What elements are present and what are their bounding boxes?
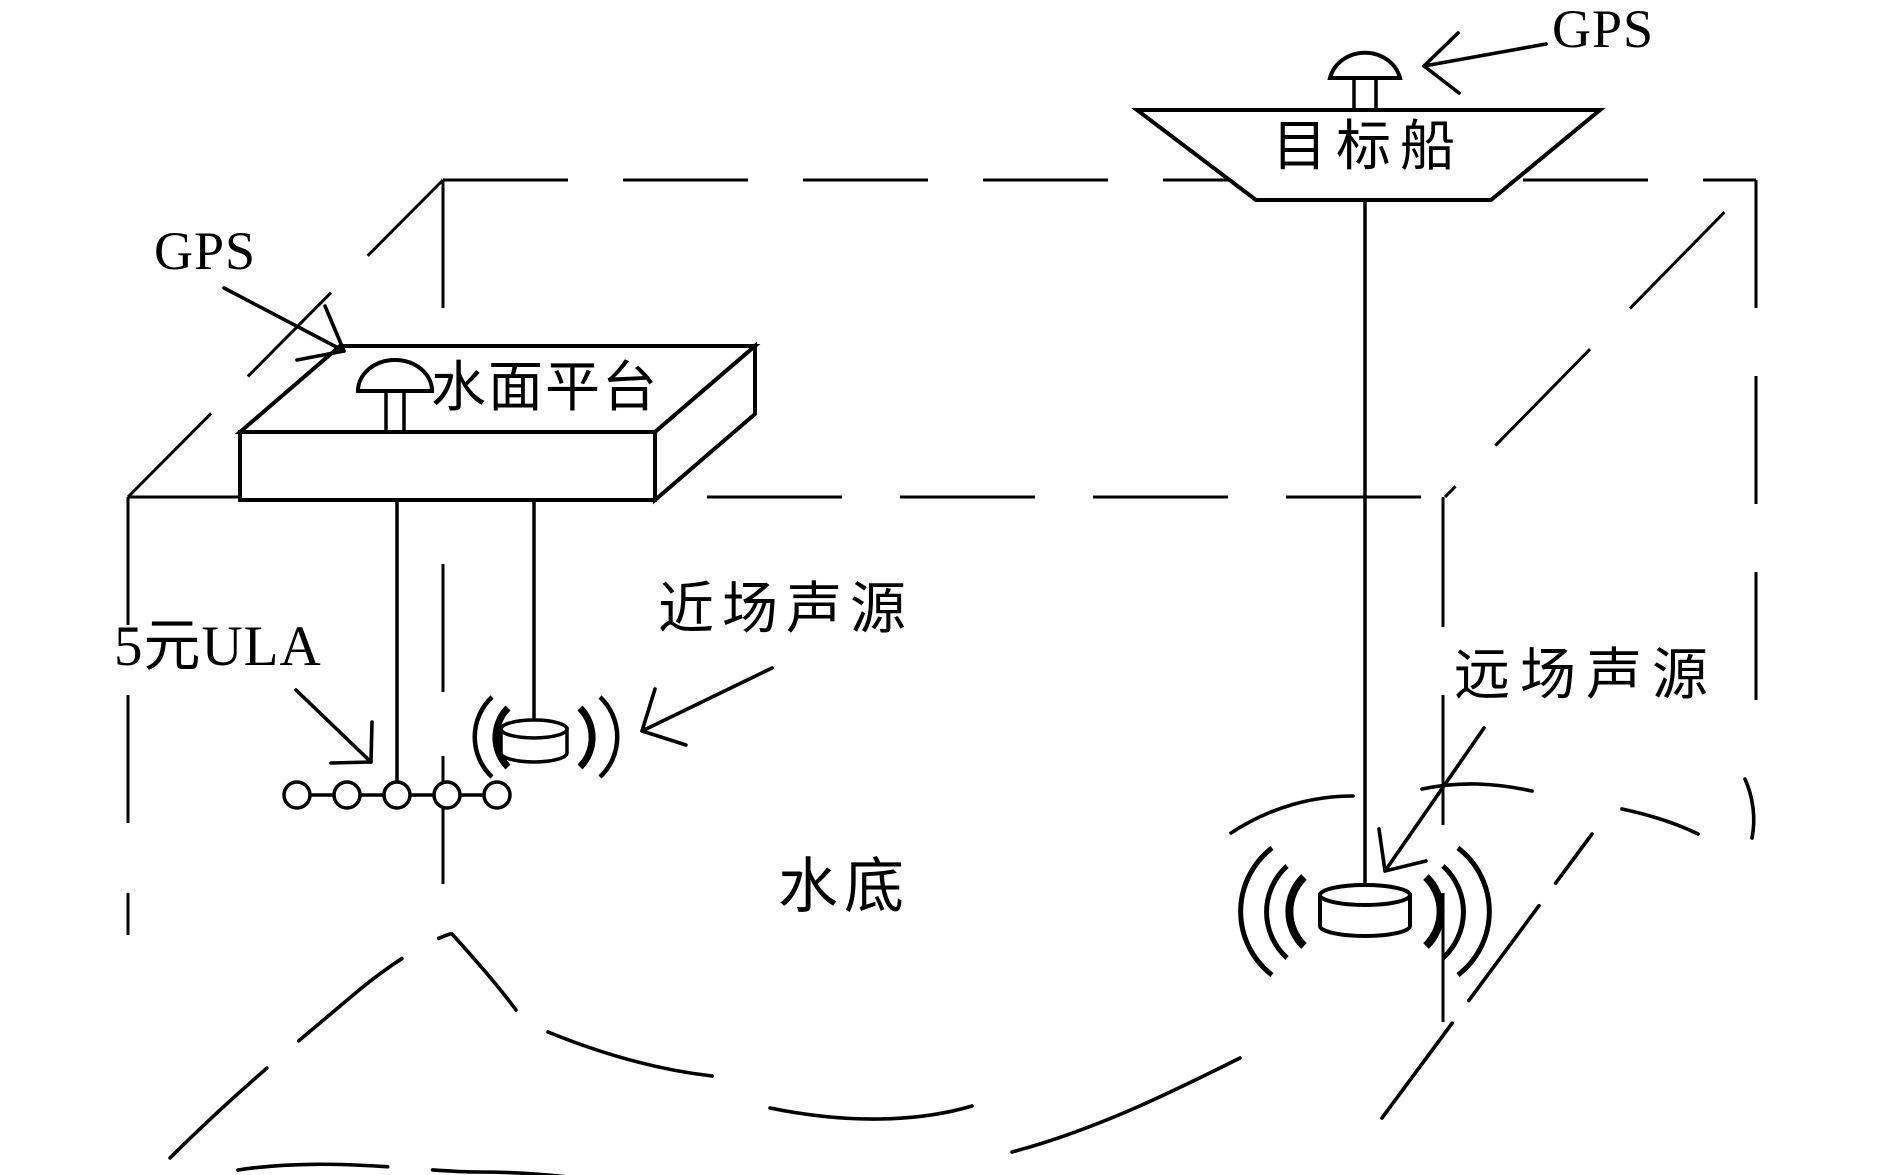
seabed-stroke-mid-right-rise	[1012, 1058, 1240, 1152]
far-source-cylinder-top	[1320, 885, 1410, 905]
ula-element-circle	[484, 782, 510, 808]
far-sound-arc-icon	[1289, 877, 1304, 946]
far-sound-arc-icon	[1443, 866, 1463, 958]
ship-gps-dome-icon	[1330, 53, 1400, 78]
seabed-stroke-mid	[770, 1106, 972, 1119]
arrow-near-source	[642, 668, 772, 745]
seabed-stroke-ridge-right	[1422, 784, 1532, 791]
seabed-stroke-left-rise	[170, 934, 450, 1158]
near-source-group	[475, 697, 618, 777]
label-target-ship: 目标船	[1272, 119, 1464, 174]
ship-gps-stem	[1354, 80, 1376, 110]
label-ula: 5元ULA	[114, 618, 322, 675]
near-sound-arc-icon	[580, 708, 592, 767]
seabed-stroke-crest-descent	[452, 934, 516, 1010]
arrow-gps-ship	[1424, 33, 1546, 93]
diagram-svg	[0, 0, 1890, 1175]
patent-figure-canvas: GPS GPS 水面平台 目标船 5元ULA 近场声源 远场声源 水底	[0, 0, 1890, 1175]
ula-element-circle	[334, 782, 360, 808]
label-surface-platform: 水面平台	[431, 360, 659, 415]
near-source-cylinder-top	[501, 720, 567, 738]
seabed-stroke-ridge-left	[1231, 796, 1353, 833]
seabed-stroke-bottom-left	[238, 1164, 672, 1175]
arrow-ula	[296, 690, 372, 763]
water-volume-dashed-box	[128, 180, 1756, 1022]
far-sound-arc-icon	[1426, 877, 1441, 946]
label-far-source: 远场声源	[1454, 648, 1718, 704]
far-sound-arc-icon	[1267, 866, 1287, 958]
seabed-stroke-steep-rise	[1382, 834, 1592, 1118]
label-seabed: 水底	[778, 857, 910, 917]
label-gps-platform: GPS	[154, 224, 256, 278]
platform-front-face	[240, 432, 655, 500]
near-sound-arc-icon	[475, 697, 492, 777]
near-sound-arc-icon	[600, 697, 617, 777]
ula-element-circle	[284, 782, 310, 808]
box-right-diagonal-edge	[1445, 180, 1756, 497]
label-near-source: 近场声源	[658, 582, 914, 638]
seabed-lines	[170, 779, 1754, 1175]
seabed-stroke-mid-left	[548, 1032, 712, 1076]
label-gps-ship: GPS	[1552, 2, 1654, 56]
ula-element-circle	[434, 782, 460, 808]
ula-array	[284, 782, 510, 808]
ula-element-circle	[384, 782, 410, 808]
arrow-far-source	[1379, 728, 1484, 871]
cables	[397, 198, 1365, 890]
seabed-stroke-right-descent	[1622, 809, 1698, 834]
seabed-stroke-right-end-hook	[1745, 779, 1754, 838]
